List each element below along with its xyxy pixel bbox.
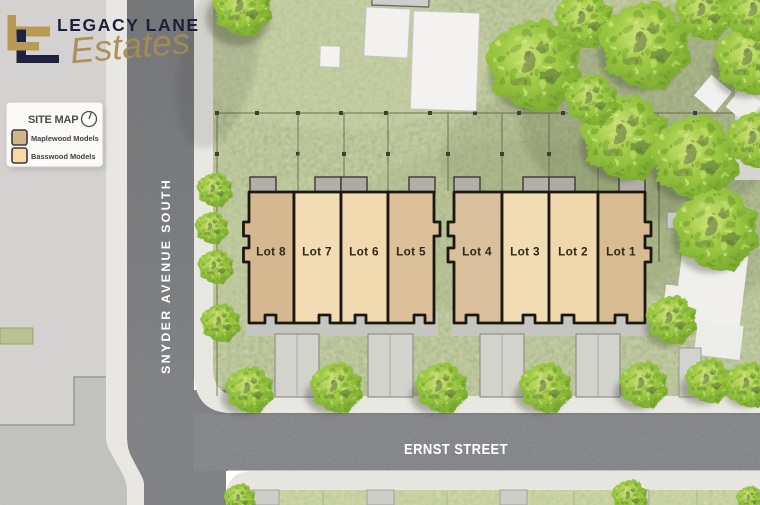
svg-text:Maplewood Models: Maplewood Models (31, 134, 99, 143)
svg-text:Lot 3: Lot 3 (510, 245, 540, 259)
svg-text:ERNST STREET: ERNST STREET (404, 441, 508, 458)
svg-text:Lot 1: Lot 1 (606, 245, 636, 259)
svg-text:Lot 7: Lot 7 (302, 245, 332, 259)
svg-text:Lot 6: Lot 6 (349, 245, 379, 259)
svg-text:Basswood Models: Basswood Models (31, 152, 95, 161)
svg-text:SNYDER AVENUE SOUTH: SNYDER AVENUE SOUTH (159, 178, 173, 374)
svg-text:Lot 4: Lot 4 (462, 245, 492, 259)
svg-text:Lot 2: Lot 2 (558, 245, 588, 259)
svg-text:SITE MAP: SITE MAP (28, 114, 78, 126)
svg-text:Lot 8: Lot 8 (256, 245, 286, 259)
svg-text:Lot 5: Lot 5 (396, 245, 426, 259)
